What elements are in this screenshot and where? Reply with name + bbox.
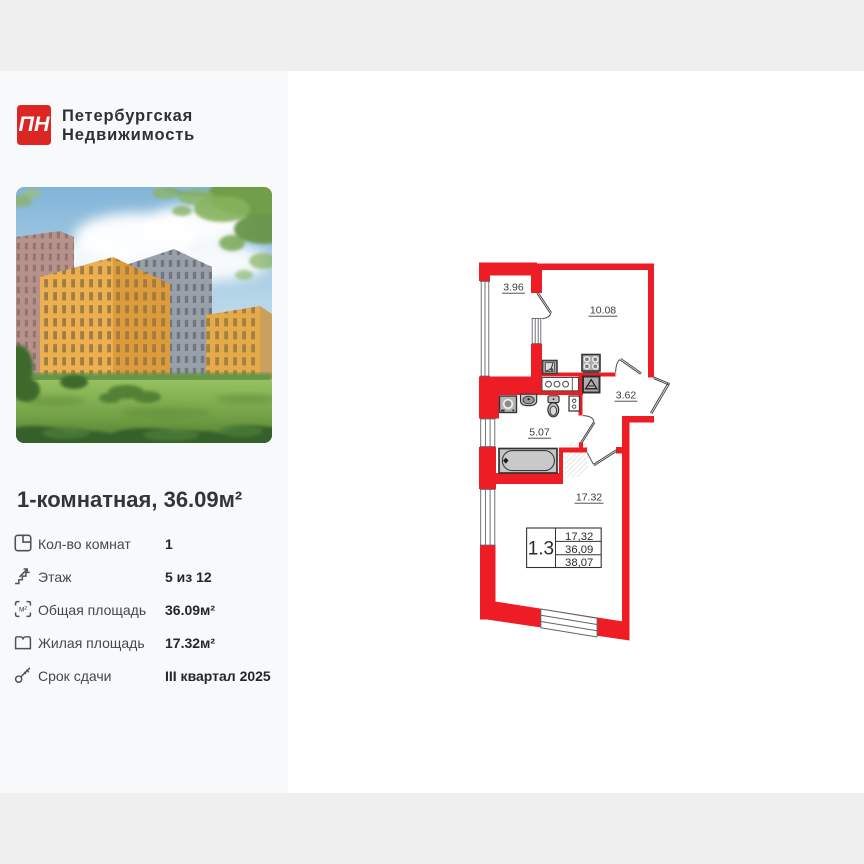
svg-text:36,09: 36,09 [565, 544, 593, 556]
svg-text:17.32: 17.32 [576, 492, 602, 504]
svg-text:3.96: 3.96 [503, 282, 524, 294]
svg-text:1.3: 1.3 [528, 539, 554, 560]
svg-text:17,32: 17,32 [565, 531, 593, 543]
svg-text:38,07: 38,07 [565, 557, 593, 569]
svg-text:5.07: 5.07 [529, 427, 550, 439]
svg-text:3.62: 3.62 [616, 390, 637, 402]
svg-text:10.08: 10.08 [590, 305, 616, 317]
